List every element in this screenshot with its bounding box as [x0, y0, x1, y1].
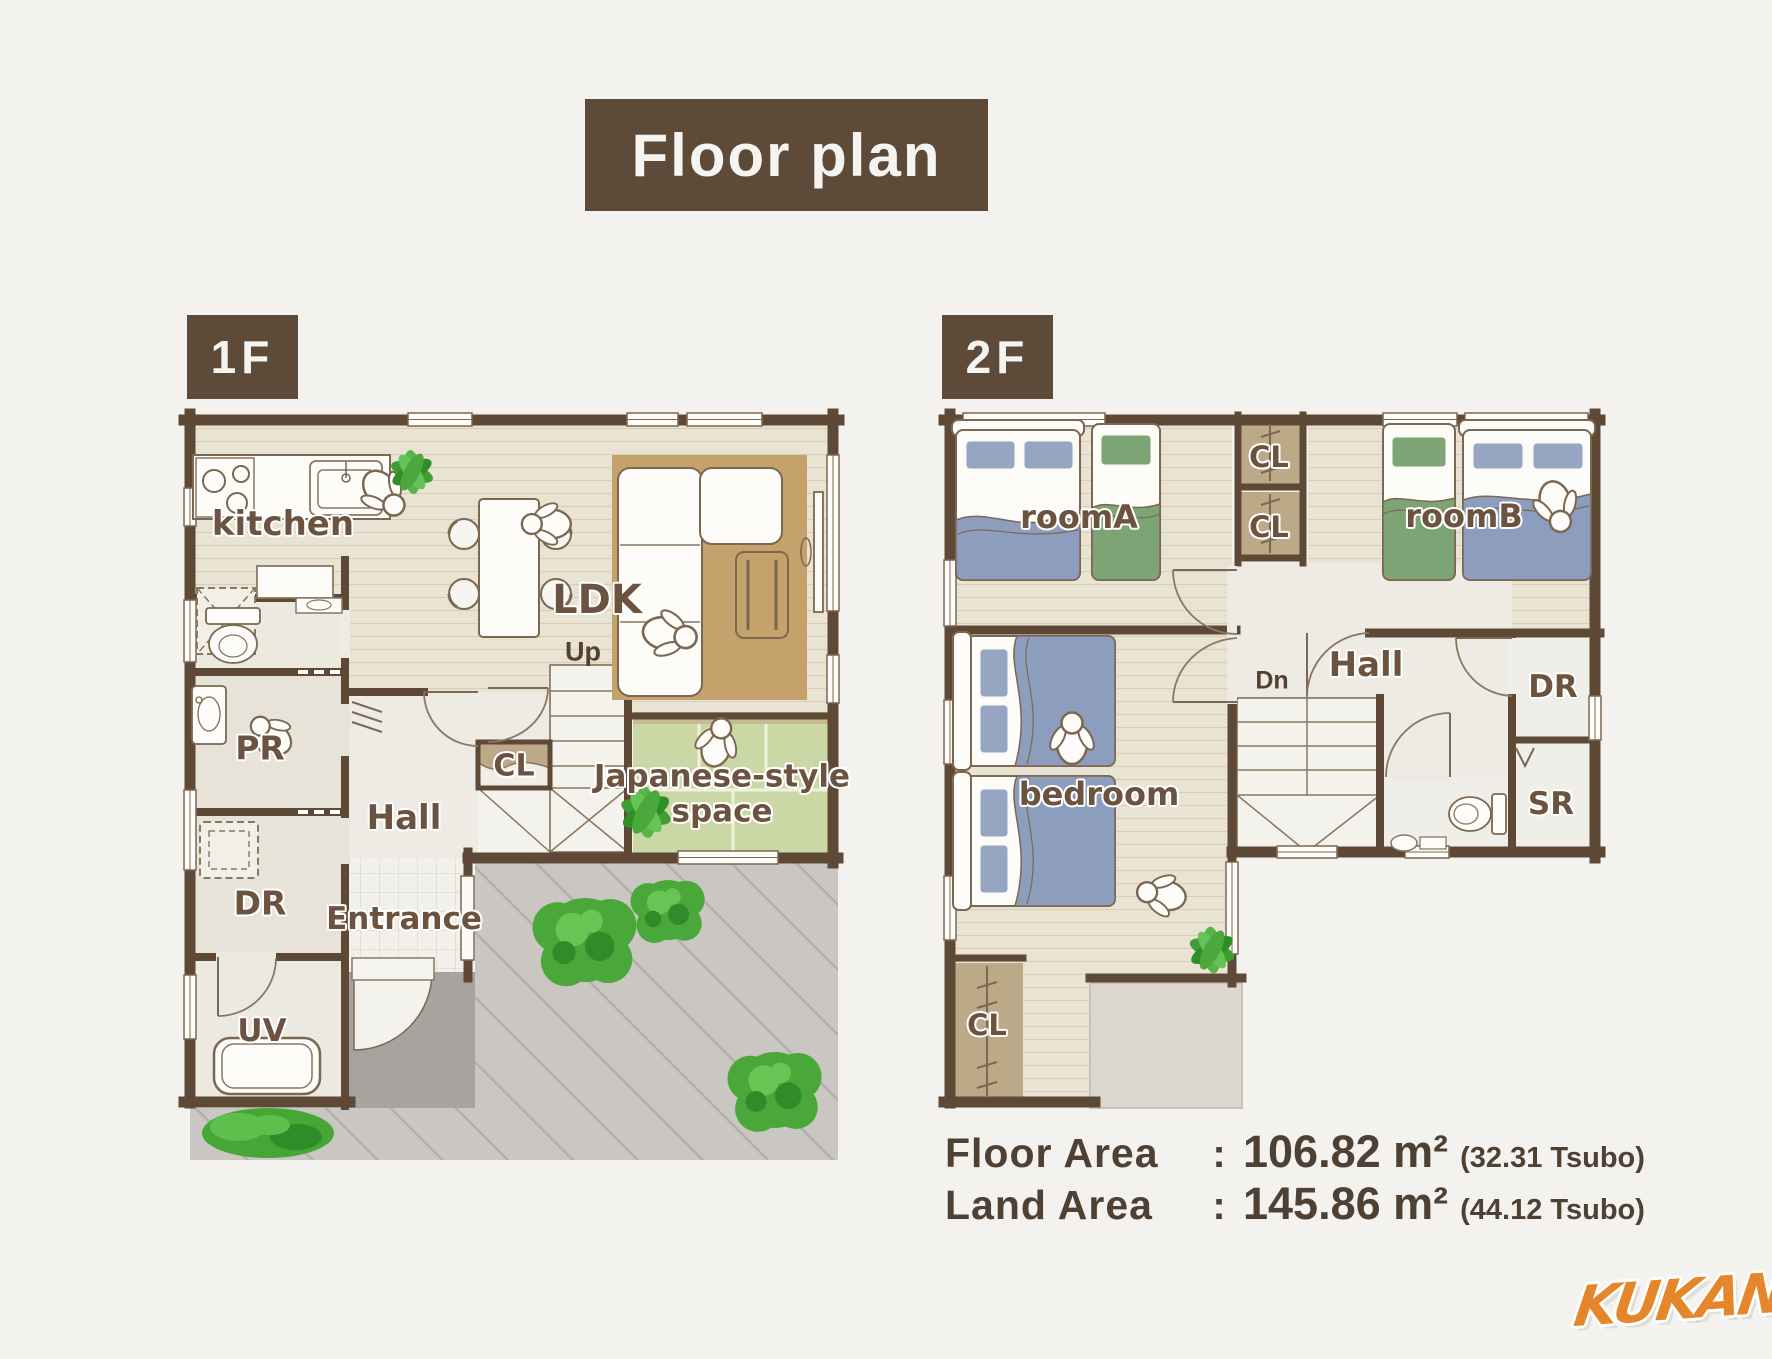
floor-tag-2f-text: 2F: [966, 330, 1030, 384]
toilet-icon: [206, 608, 260, 624]
room-label-kitchen: kitchen: [212, 504, 354, 544]
land-area-row: Land Area : 145.86 m² (44.12 Tsubo): [945, 1178, 1645, 1230]
floor-tag-2f: 2F: [942, 315, 1053, 399]
living-set: [612, 455, 823, 700]
room-label-japanese-line2: space: [594, 794, 850, 829]
tree-icon: [631, 880, 705, 943]
tree-icon: [728, 1052, 822, 1132]
room-label-roomb: roomB: [1405, 497, 1522, 535]
room-label-uv: UV: [237, 1013, 286, 1049]
room-label-cl-mid: CL: [1249, 510, 1289, 544]
room-label-sr: SR: [1528, 786, 1574, 822]
land-area-colon: :: [1195, 1184, 1243, 1229]
floor-plan-poster: Floor plan 1F 2F: [0, 0, 1772, 1359]
room-label-pr: PR: [235, 729, 285, 768]
land-area-value: 145.86 m²: [1243, 1178, 1448, 1230]
floor-tag-1f-text: 1F: [211, 330, 275, 384]
room-label-japanese-line1: Japanese-style: [594, 759, 850, 794]
floor-area-tsubo: (32.31 Tsubo): [1460, 1142, 1645, 1175]
floor-area-row: Floor Area : 106.82 m² (32.31 Tsubo): [945, 1126, 1645, 1178]
sink-icon: [1391, 835, 1417, 851]
room-label-rooma: roomA: [1020, 498, 1138, 536]
area-summary: Floor Area : 106.82 m² (32.31 Tsubo) Lan…: [945, 1126, 1645, 1230]
room-label-cl-top: CL: [1249, 440, 1289, 474]
room-label-bedroom: bedroom: [1019, 775, 1180, 813]
page-title-text: Floor plan: [632, 121, 942, 190]
tv-icon: [814, 492, 823, 612]
land-area-label: Land Area: [945, 1182, 1195, 1229]
vanity-icon: [192, 686, 226, 744]
room-label-japanese: Japanese-style space: [594, 759, 850, 828]
page-title: Floor plan: [585, 99, 988, 211]
bush-icon: [202, 1108, 334, 1158]
room-label-entrance: Entrance: [326, 901, 482, 937]
room-label-hall-1f: Hall: [367, 798, 442, 838]
room-label-dr-2f: DR: [1528, 669, 1578, 705]
floor-area-value: 106.82 m²: [1243, 1126, 1448, 1178]
room-label-dr-1f: DR: [234, 884, 287, 923]
stairs-label-up: Up: [565, 637, 601, 668]
tree-icon: [533, 898, 637, 986]
room-label-hall-2f: Hall: [1329, 645, 1404, 685]
room-label-cl-1f: CL: [493, 749, 534, 784]
kukan-logo: KUKAN: [1570, 1261, 1772, 1340]
floor-tag-1f: 1F: [187, 315, 298, 399]
floor-area-colon: :: [1195, 1132, 1243, 1177]
stairs-label-dn: Dn: [1255, 667, 1288, 696]
floor-area-label: Floor Area: [945, 1130, 1195, 1177]
land-area-tsubo: (44.12 Tsubo): [1460, 1194, 1645, 1227]
room-label-cl-bottom: CL: [967, 1008, 1007, 1042]
balcony: [1090, 983, 1242, 1108]
room-label-ldk: LDK: [552, 577, 642, 623]
